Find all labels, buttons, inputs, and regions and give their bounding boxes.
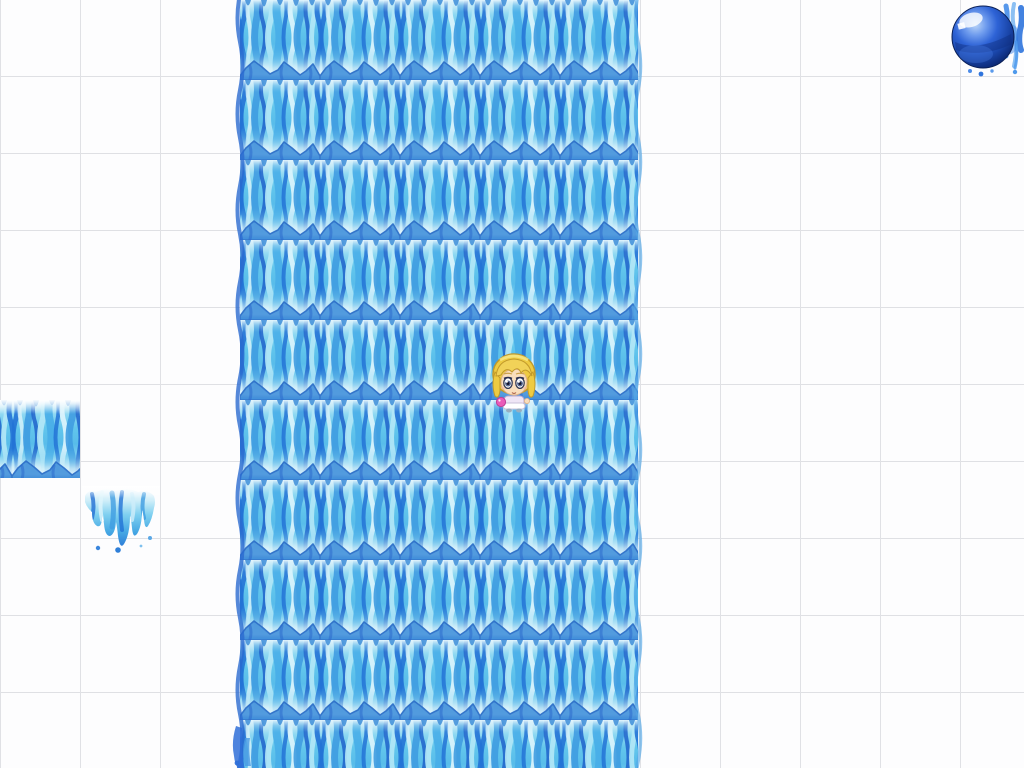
pink-bag xyxy=(496,397,505,406)
waterfall-column[interactable] xyxy=(228,0,648,768)
game-viewport[interactable] xyxy=(0,0,1024,768)
waterfall-drip-tile[interactable] xyxy=(82,486,160,554)
drip-tile-highlight xyxy=(82,486,160,498)
player-head xyxy=(493,354,535,397)
waterfall-body[interactable] xyxy=(238,0,641,768)
orb-droplets xyxy=(968,69,994,76)
waterfall-single-tile[interactable] xyxy=(0,400,80,478)
orb-sphere xyxy=(952,6,1014,68)
player-body xyxy=(496,396,529,413)
player-character[interactable] xyxy=(488,346,540,414)
water-orb[interactable] xyxy=(946,2,1024,78)
